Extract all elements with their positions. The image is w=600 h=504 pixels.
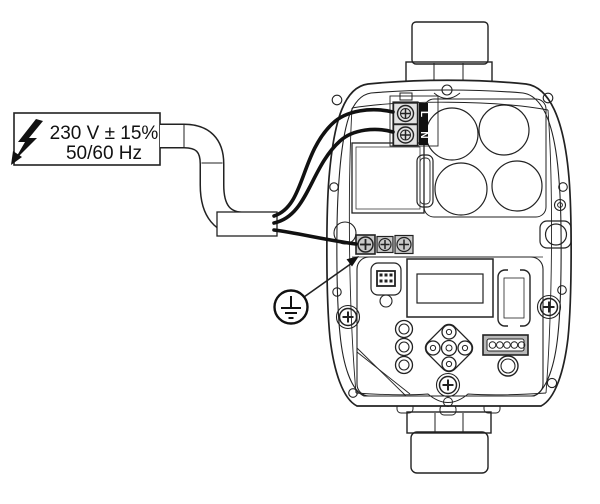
- protective-earth-icon: [275, 291, 308, 324]
- voltage-text: 230 V ± 15%: [50, 123, 159, 144]
- cover-screw-right: [538, 296, 561, 319]
- diagram-canvas: L N: [0, 0, 600, 504]
- strip-screw-2: [379, 239, 391, 251]
- cable-sheath-end: [217, 212, 277, 236]
- cover-screw-bottom: [437, 374, 460, 397]
- frequency-text: 50/60 Hz: [66, 143, 142, 164]
- terminal-label-strip: [419, 103, 428, 145]
- earth-screw: [358, 237, 373, 252]
- output-connector: [483, 335, 528, 355]
- power-rating-label: 230 V ± 15% 50/60 Hz: [11, 113, 160, 165]
- wiring-diagram: L N: [0, 0, 600, 504]
- strip-screw-3: [397, 238, 411, 252]
- terminal-label-neutral: N: [418, 131, 429, 138]
- top-pipe-connector: [406, 22, 492, 83]
- supply-cable: [160, 125, 277, 237]
- bottom-pipe-connector: [407, 412, 491, 473]
- terminal-label-live: L: [418, 111, 429, 117]
- controller-unit: L N: [327, 22, 571, 473]
- cover-screw-left: [337, 306, 360, 329]
